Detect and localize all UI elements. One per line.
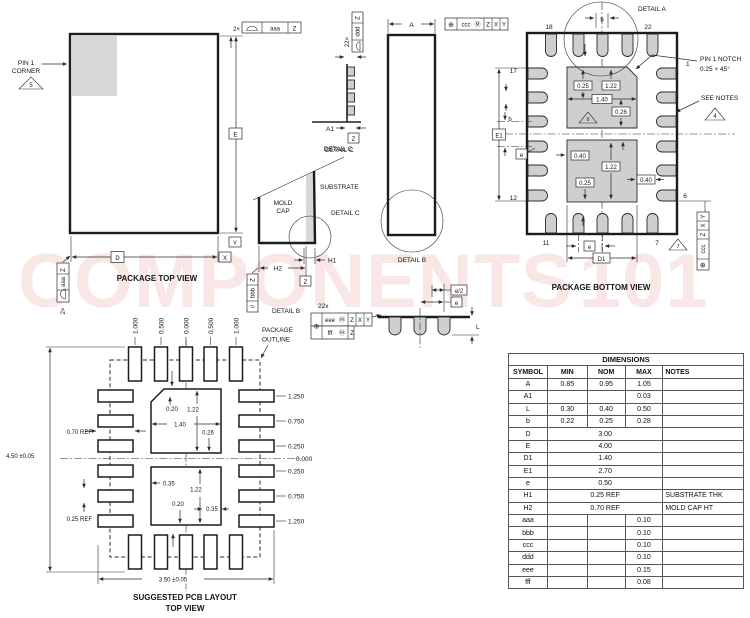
dim-b-top: b xyxy=(600,18,604,24)
svg-text:22×: 22× xyxy=(345,36,351,47)
table-cell: A1 xyxy=(509,391,548,403)
table-row: D3.00 xyxy=(509,428,744,440)
table-cell xyxy=(663,453,744,465)
table-cell xyxy=(663,403,744,415)
table-row: b0.220.250.28 xyxy=(509,415,744,427)
pin1-corner-label2: CORNER xyxy=(12,68,40,75)
fcf-bbb: Z bbb // xyxy=(247,268,258,312)
table-cell: 0.10 xyxy=(625,527,663,539)
svg-text:ccc: ccc xyxy=(701,245,707,254)
datum-Z: Z xyxy=(352,137,356,143)
table-row: A0.850.951.05 xyxy=(509,378,744,390)
detail-b-label: DETAIL B xyxy=(398,257,426,264)
svg-text:0.40: 0.40 xyxy=(574,154,586,160)
dimensions-table-body: A0.850.951.05A10.03L0.300.400.50b0.220.2… xyxy=(509,378,744,589)
svg-text:2×: 2× xyxy=(233,27,240,33)
pcb-pads-top xyxy=(129,347,243,381)
table-header-row: SYMBOL MIN NOM MAX NOTES xyxy=(509,366,744,378)
table-cell xyxy=(663,539,744,551)
svg-text:0.750: 0.750 xyxy=(288,494,305,501)
datum-Z: Z xyxy=(304,280,308,286)
table-cell: H2 xyxy=(509,502,548,514)
dim-H1: H1 xyxy=(328,258,337,265)
table-cell: ddd xyxy=(509,552,548,564)
table-cell: 0.22 xyxy=(547,415,587,427)
table-cell: 0.25 REF xyxy=(547,490,662,502)
table-row: aaa0.10 xyxy=(509,515,744,527)
table-row: A10.03 xyxy=(509,391,744,403)
datum-X: X xyxy=(223,256,227,262)
svg-text:ddd: ddd xyxy=(356,26,362,36)
table-cell: 0.50 xyxy=(547,477,662,489)
table-cell: E1 xyxy=(509,465,548,477)
svg-text:0.500: 0.500 xyxy=(208,317,215,334)
svg-text:6: 6 xyxy=(586,117,589,123)
table-row: fff0.08 xyxy=(509,577,744,589)
table-cell xyxy=(663,428,744,440)
side-view: A DETAIL B xyxy=(381,19,443,264)
svg-text:1.22: 1.22 xyxy=(190,488,202,494)
table-cell: eee xyxy=(509,564,548,576)
table-cell xyxy=(587,552,625,564)
svg-text:Y: Y xyxy=(502,23,506,29)
pins-bottom xyxy=(546,214,659,233)
svg-text:Z: Z xyxy=(293,27,297,33)
fcf-aaa-top: 2× aaa Z xyxy=(231,22,301,48)
lead-profile-detail-c: Z ddd 22× A1 Z DETAIL C xyxy=(312,12,366,153)
table-row: H10.25 REFSUBSTRATE THK xyxy=(509,490,744,502)
svg-text:0.750: 0.750 xyxy=(288,419,305,426)
svg-text:0.000: 0.000 xyxy=(184,317,191,334)
side-view-body xyxy=(388,35,435,235)
table-row: ccc0.10 xyxy=(509,539,744,551)
col-header: SYMBOL xyxy=(509,366,548,378)
position-icon: ⊕ xyxy=(700,262,707,268)
detail-b-circle xyxy=(381,190,443,252)
top-view-title: PACKAGE TOP VIEW xyxy=(117,274,198,283)
table-cell: SUBSTRATE THK xyxy=(663,490,744,502)
table-cell: 0.25 xyxy=(587,415,625,427)
dim-E: E xyxy=(233,133,237,139)
svg-text:0.35: 0.35 xyxy=(163,482,175,488)
table-row: H20.70 REFMOLD CAP HT xyxy=(509,502,744,514)
svg-text:1.250: 1.250 xyxy=(288,519,305,526)
detail-c-callout: DETAIL C xyxy=(325,147,354,154)
svg-text:1.250: 1.250 xyxy=(288,394,305,401)
package-bottom-view: DETAIL A b 18 22 17 12 11 7 6 1 PIN 1 NO… xyxy=(493,2,742,292)
dim-H2: H2 xyxy=(274,266,283,273)
table-cell xyxy=(663,564,744,576)
table-cell: E xyxy=(509,440,548,452)
table-cell: 0.70 REF xyxy=(547,502,662,514)
dim-b-left: b xyxy=(508,117,512,123)
dim-D: D xyxy=(115,256,120,262)
svg-text:Z: Z xyxy=(486,23,490,29)
table-cell xyxy=(663,465,744,477)
table-cell: 0.28 xyxy=(625,415,663,427)
table-cell: 4.00 xyxy=(547,440,662,452)
pcb-col-labels: 1.000 0.500 0.000 0.500 1.000 xyxy=(133,317,241,345)
mmc-icon: Ⓜ xyxy=(339,329,345,337)
svg-text:0.25: 0.25 xyxy=(577,84,589,90)
svg-text:fff: fff xyxy=(328,331,333,337)
position-icon: ⊕ xyxy=(314,324,320,331)
table-cell: MOLD CAP HT xyxy=(663,502,744,514)
fcf-aaa-left: Z aaa 2× xyxy=(57,256,70,314)
svg-text:Z: Z xyxy=(350,318,354,324)
svg-text:7: 7 xyxy=(676,244,679,250)
table-cell xyxy=(663,378,744,390)
table-cell: 0.08 xyxy=(625,577,663,589)
table-row: E12.70 xyxy=(509,465,744,477)
svg-text:1.22: 1.22 xyxy=(187,408,199,414)
table-cell: 0.10 xyxy=(625,552,663,564)
svg-text:eee: eee xyxy=(325,318,336,324)
package-outline-label: PACKAGE xyxy=(262,327,294,334)
table-cell: 0.10 xyxy=(625,515,663,527)
table-cell xyxy=(663,552,744,564)
table-cell xyxy=(547,564,587,576)
svg-text:0.35: 0.35 xyxy=(206,507,218,513)
table-cell xyxy=(587,391,625,403)
svg-text:aaa: aaa xyxy=(270,27,281,33)
svg-text:4: 4 xyxy=(713,114,717,120)
dim-A: A xyxy=(409,22,414,29)
pcb-row-labels: 1.250 0.750 0.250 0.000 0.250 0.750 1.25… xyxy=(276,394,313,526)
dimensions-table: DIMENSIONS SYMBOL MIN NOM MAX NOTES A0.8… xyxy=(508,353,744,589)
table-cell xyxy=(587,564,625,576)
dim-width: 3.50 ±0.05 xyxy=(159,578,188,584)
table-cell: 1.05 xyxy=(625,378,663,390)
dim-L: L xyxy=(476,324,480,331)
table-row: bbb0.10 xyxy=(509,527,744,539)
bottom-view-title: PACKAGE BOTTOM VIEW xyxy=(552,283,651,292)
pin-number: 11 xyxy=(543,240,550,247)
svg-text:Y: Y xyxy=(701,214,707,218)
position-icon: ⊕ xyxy=(448,22,454,29)
table-cell xyxy=(663,577,744,589)
table-cell xyxy=(663,440,744,452)
table-cell: bbb xyxy=(509,527,548,539)
mold-cap-section: MOLD CAP DETAIL C SUBSTRATE DETAIL C H1 … xyxy=(247,147,360,315)
table-cell: ccc xyxy=(509,539,548,551)
table-cell xyxy=(663,391,744,403)
pin-number: 22 xyxy=(644,24,652,31)
pcb-center-pad-bottom xyxy=(151,467,221,525)
substrate-label: SUBSTRATE xyxy=(320,184,359,191)
table-cell xyxy=(587,577,625,589)
svg-text:bbb: bbb xyxy=(251,287,257,298)
table-cell: L xyxy=(509,403,548,415)
svg-text:0.26: 0.26 xyxy=(615,110,627,116)
table-row: eee0.15 xyxy=(509,564,744,576)
svg-text:0.25 × 45°: 0.25 × 45° xyxy=(700,65,730,73)
svg-text:OUTLINE: OUTLINE xyxy=(262,337,291,344)
table-cell: fff xyxy=(509,577,548,589)
svg-text:CAP: CAP xyxy=(276,208,289,215)
dim-height: 4.50 ±0.05 xyxy=(6,454,35,460)
svg-text:0.20: 0.20 xyxy=(172,502,184,508)
svg-text:1.22: 1.22 xyxy=(605,84,617,90)
table-cell: D xyxy=(509,428,548,440)
table-cell xyxy=(587,539,625,551)
svg-text:Z: Z xyxy=(61,268,67,272)
col-header: NOTES xyxy=(663,366,744,378)
svg-text:1.22: 1.22 xyxy=(605,165,617,171)
pin1-notch-label: PIN 1 NOTCH xyxy=(700,56,741,63)
table-row: D11.40 xyxy=(509,453,744,465)
svg-text:Z: Z xyxy=(350,331,354,337)
svg-text:aaa: aaa xyxy=(61,276,67,287)
svg-text:0.26: 0.26 xyxy=(202,431,214,437)
svg-text:X: X xyxy=(701,223,707,227)
see-notes-label: SEE NOTES xyxy=(701,95,739,102)
svg-text:0.000: 0.000 xyxy=(296,456,313,463)
table-row: E4.00 xyxy=(509,440,744,452)
fcf-ddd: Z ddd 22× xyxy=(345,12,363,52)
table-cell xyxy=(663,477,744,489)
table-cell: aaa xyxy=(509,515,548,527)
svg-text:5: 5 xyxy=(29,83,33,89)
col-header: MAX xyxy=(625,366,663,378)
table-cell xyxy=(547,552,587,564)
svg-text:0.500: 0.500 xyxy=(159,317,166,334)
table-cell: 0.15 xyxy=(625,564,663,576)
table-cell: 0.30 xyxy=(547,403,587,415)
svg-text:Z: Z xyxy=(251,278,257,282)
datum-Y: Y xyxy=(233,241,237,247)
table-cell: 1.40 xyxy=(547,453,662,465)
table-cell: 0.50 xyxy=(625,403,663,415)
svg-text:0.250: 0.250 xyxy=(288,469,305,476)
dim-A1: A1 xyxy=(326,126,334,133)
svg-text:2×: 2× xyxy=(61,307,67,314)
col-header: MIN xyxy=(547,366,587,378)
detail-b-ref-label: DETAIL B xyxy=(272,308,300,315)
mmc-icon: Ⓜ xyxy=(339,316,345,324)
table-cell: 2.70 xyxy=(547,465,662,477)
svg-text:0.25: 0.25 xyxy=(579,181,591,187)
mechanical-drawing-page: COMPONENTS101 PIN 1 CORNER 5 2× aaa xyxy=(0,0,750,618)
pin-number: 1 xyxy=(686,61,690,68)
parallelism-icon: // xyxy=(251,305,257,309)
detail-b-view: 22x ⊕ eee Ⓜ Z X Y fff Ⓜ Z xyxy=(311,284,480,348)
pin-number: 17 xyxy=(510,68,518,75)
pin-number: 7 xyxy=(655,240,659,247)
fcf-ccc-top: ⊕ ccc Ⓜ Z X Y xyxy=(445,18,508,30)
table-cell: b xyxy=(509,415,548,427)
svg-text:1.000: 1.000 xyxy=(133,317,140,334)
table-cell xyxy=(587,515,625,527)
detail-c-circle-label: DETAIL C xyxy=(331,210,360,217)
pcb-layout: 1.000 0.500 0.000 0.500 1.000 1.250 xyxy=(6,317,313,613)
table-row: L0.300.400.50 xyxy=(509,403,744,415)
table-cell xyxy=(547,527,587,539)
mold-cap-label: MOLD xyxy=(274,200,293,207)
svg-text:Z: Z xyxy=(356,16,362,20)
table-cell xyxy=(547,515,587,527)
table-title-row: DIMENSIONS xyxy=(509,354,744,366)
table-cell: 0.85 xyxy=(547,378,587,390)
table-cell: 0.03 xyxy=(625,391,663,403)
svg-text:Y: Y xyxy=(366,318,370,324)
package-top-view: PIN 1 CORNER 5 2× aaa Z E xyxy=(12,22,301,314)
svg-text:1.000: 1.000 xyxy=(234,317,241,334)
svg-text:TOP VIEW: TOP VIEW xyxy=(166,604,205,613)
count-label: 22x xyxy=(318,303,329,310)
pin1-corner-label: PIN 1 xyxy=(18,60,35,67)
pin1-corner-shade xyxy=(72,36,117,96)
svg-text:0.40: 0.40 xyxy=(640,178,652,184)
table-cell xyxy=(587,527,625,539)
table-cell xyxy=(663,527,744,539)
pin-number: 6 xyxy=(683,193,687,200)
detail-a-label: DETAIL A xyxy=(638,6,666,13)
table-cell: 0.40 xyxy=(587,403,625,415)
dim-e-half: e/2 xyxy=(455,289,464,295)
table-cell: 3.00 xyxy=(547,428,662,440)
table-cell: A xyxy=(509,378,548,390)
table-cell: D1 xyxy=(509,453,548,465)
table-cell xyxy=(663,515,744,527)
ref-025: 0.25 REF xyxy=(67,517,93,523)
table-cell xyxy=(547,577,587,589)
table-cell xyxy=(547,391,587,403)
dim-D1: D1 xyxy=(598,257,606,263)
svg-text:0.250: 0.250 xyxy=(288,444,305,451)
svg-text:X: X xyxy=(494,23,498,29)
table-cell xyxy=(547,539,587,551)
pin-number: 18 xyxy=(545,24,553,31)
table-row: ddd0.10 xyxy=(509,552,744,564)
table-cell: e xyxy=(509,477,548,489)
table-cell: 0.95 xyxy=(587,378,625,390)
pcb-pads-bottom xyxy=(129,535,243,569)
svg-text:0.20: 0.20 xyxy=(166,407,178,413)
pins-top xyxy=(546,34,659,57)
table-title: DIMENSIONS xyxy=(509,354,744,366)
pins-left xyxy=(528,68,548,201)
svg-text:1.40: 1.40 xyxy=(596,98,608,104)
svg-text:ccc: ccc xyxy=(462,23,471,29)
table-cell: 0.10 xyxy=(625,539,663,551)
svg-text:Z: Z xyxy=(701,232,707,236)
fcf-ccc-right: Y X Z ccc ⊕ xyxy=(679,201,711,270)
pins-right xyxy=(657,68,677,201)
table-row: e0.50 xyxy=(509,477,744,489)
pcb-layout-title: SUGGESTED PCB LAYOUT xyxy=(133,593,237,602)
col-header: NOM xyxy=(587,366,625,378)
dim-E1: E1 xyxy=(495,134,503,140)
table-cell: H1 xyxy=(509,490,548,502)
mmc-icon: Ⓜ xyxy=(474,21,480,29)
table-cell xyxy=(663,415,744,427)
svg-text:1.40: 1.40 xyxy=(174,423,186,429)
fcf-eee-fff: ⊕ eee Ⓜ Z X Y fff Ⓜ Z xyxy=(311,313,381,339)
svg-text:X: X xyxy=(358,318,362,324)
